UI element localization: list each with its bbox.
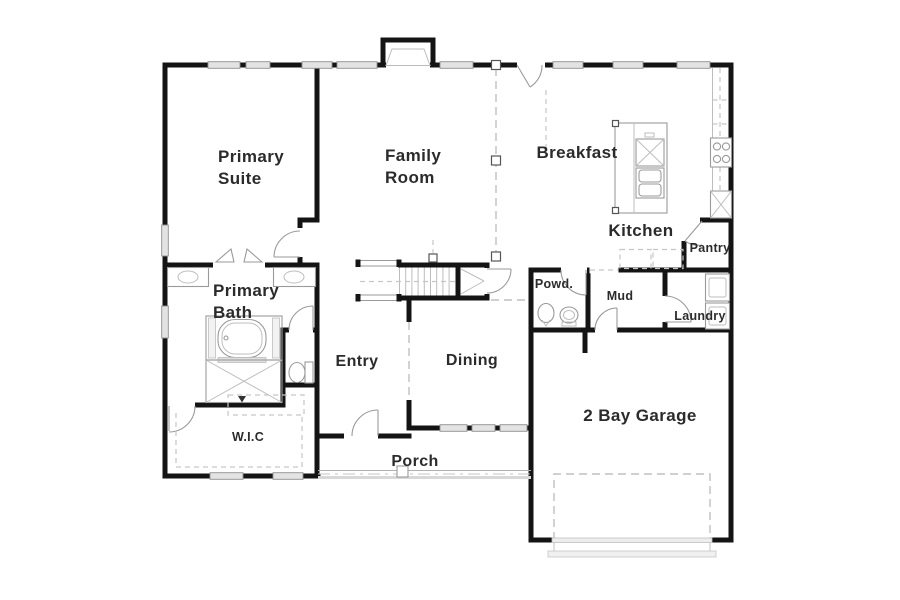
garage-door — [548, 474, 716, 557]
powder-sink-icon — [538, 304, 554, 327]
room-label-mud: Mud — [607, 289, 634, 303]
room-label-primary-suite-line2: Suite — [218, 169, 262, 188]
room-label-garage: 2 Bay Garage — [583, 406, 696, 425]
shower-icon — [206, 360, 282, 403]
room-label-primary-bath-line2: Bath — [213, 303, 252, 322]
room-label-pantry: Pantry — [690, 241, 731, 255]
bathtub-icon — [206, 316, 282, 363]
range-icon — [711, 138, 732, 167]
floor-plan: Primary Suite Family Room Breakfast Kitc… — [0, 0, 900, 600]
room-label-family-room-line1: Family — [385, 146, 441, 165]
room-label-breakfast: Breakfast — [536, 143, 617, 162]
room-label-porch: Porch — [391, 453, 438, 470]
room-label-entry: Entry — [336, 353, 379, 370]
column-line — [409, 61, 546, 401]
stairs — [356, 240, 485, 302]
toilet-icon — [289, 362, 313, 383]
room-label-laundry: Laundry — [674, 309, 725, 323]
powder-toilet-icon — [560, 307, 578, 326]
kitchen-island — [613, 121, 668, 214]
fireplace-icon — [383, 40, 433, 69]
room-label-primary-suite-line1: Primary — [218, 147, 284, 166]
doors — [169, 62, 702, 440]
floor-plan-svg: Primary Suite Family Room Breakfast Kitc… — [0, 0, 900, 600]
room-label-family-room-line2: Room — [385, 168, 435, 187]
room-label-dining: Dining — [446, 352, 498, 369]
room-label-powder: Powd. — [535, 277, 573, 291]
room-label-primary-bath-line1: Primary — [213, 281, 279, 300]
room-label-kitchen: Kitchen — [608, 221, 673, 240]
room-label-wic: W.I.C — [232, 430, 264, 444]
